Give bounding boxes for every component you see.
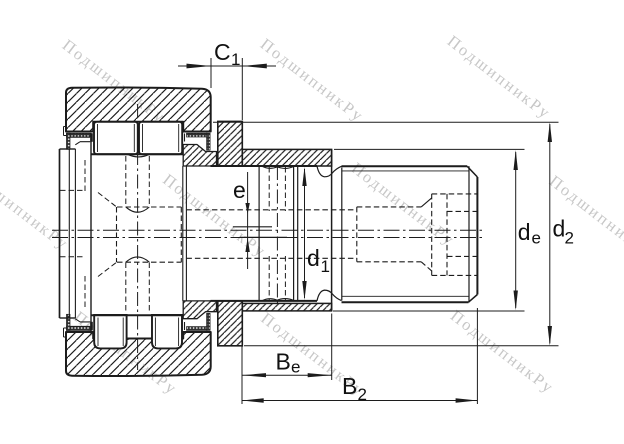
svg-text:e: e bbox=[233, 177, 246, 203]
svg-text:2: 2 bbox=[565, 229, 574, 248]
svg-text:d: d bbox=[553, 216, 566, 242]
svg-text:e: e bbox=[291, 358, 300, 377]
svg-text:d: d bbox=[307, 245, 320, 271]
svg-text:B: B bbox=[276, 349, 291, 375]
svg-text:B: B bbox=[342, 373, 357, 399]
svg-text:1: 1 bbox=[321, 257, 330, 276]
svg-text:d: d bbox=[518, 219, 531, 245]
svg-text:ПодшипникРу: ПодшипникРу bbox=[447, 306, 558, 398]
svg-text:ПодшипникРу: ПодшипникРу bbox=[348, 158, 459, 250]
svg-text:e: e bbox=[532, 229, 541, 248]
svg-text:ПодшипникРу: ПодшипникРу bbox=[444, 31, 555, 123]
svg-text:C: C bbox=[214, 39, 231, 65]
svg-text:ПодшипникРу: ПодшипникРу bbox=[159, 170, 270, 262]
svg-text:ПодшипникРу: ПодшипникРу bbox=[257, 34, 368, 126]
svg-text:ПодшипникРу: ПодшипникРу bbox=[0, 162, 73, 254]
svg-text:1: 1 bbox=[231, 50, 240, 69]
svg-text:2: 2 bbox=[358, 385, 367, 404]
